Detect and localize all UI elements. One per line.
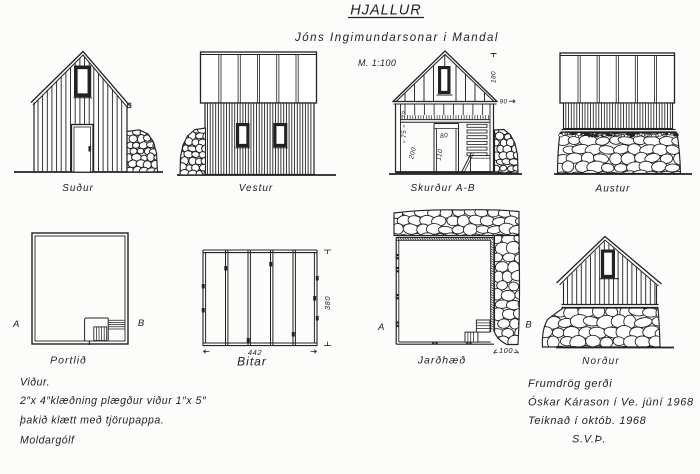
svg-text:Teiknað í októb. 1968: Teiknað í októb. 1968: [528, 415, 647, 427]
svg-text:B: B: [138, 318, 145, 329]
svg-text:A: A: [377, 322, 384, 333]
svg-text:A: A: [12, 319, 19, 330]
svg-text:Jarðhæð: Jarðhæð: [417, 354, 466, 366]
svg-text:S.V.Þ.: S.V.Þ.: [572, 434, 606, 446]
svg-text:Norður: Norður: [582, 356, 620, 367]
svg-text:Portlið: Portlið: [50, 354, 87, 366]
svg-text:Jóns Ingimundarsonar i Mandal: Jóns Ingimundarsonar i Mandal: [294, 32, 499, 44]
svg-text:B: B: [525, 320, 532, 331]
svg-text:HJALLUR: HJALLUR: [350, 3, 421, 19]
svg-text:Austur: Austur: [595, 183, 631, 194]
svg-text:75: 75: [401, 130, 408, 138]
svg-text:Viður.: Viður.: [20, 377, 50, 389]
svg-text:180: 180: [491, 71, 498, 83]
svg-text:Moldargólf: Moldargólf: [20, 435, 75, 447]
svg-text:Vestur: Vestur: [239, 183, 274, 194]
svg-text:þakið klætt með tjörupappa.: þakið klætt með tjörupappa.: [19, 415, 164, 427]
svg-text:Bitar: Bitar: [237, 355, 267, 369]
svg-text:Frumdrög gerði: Frumdrög gerði: [528, 378, 612, 390]
svg-text:100: 100: [499, 346, 513, 355]
svg-text:380: 380: [323, 296, 332, 311]
svg-text:80: 80: [440, 132, 449, 140]
svg-text:2″x 4″klæðning plægður viður: 2″x 4″klæðning plægður viður 1″x 5″: [19, 395, 207, 407]
svg-text:90: 90: [499, 99, 507, 106]
svg-text:75: 75: [401, 110, 407, 117]
svg-text:Óskar Kárason í Ve. júní 1968: Óskar Kárason í Ve. júní 1968: [528, 396, 694, 409]
svg-text:Suður: Suður: [62, 183, 94, 194]
svg-text:Skurður A-B: Skurður A-B: [410, 183, 475, 194]
svg-text:M. 1:100: M. 1:100: [358, 58, 396, 68]
